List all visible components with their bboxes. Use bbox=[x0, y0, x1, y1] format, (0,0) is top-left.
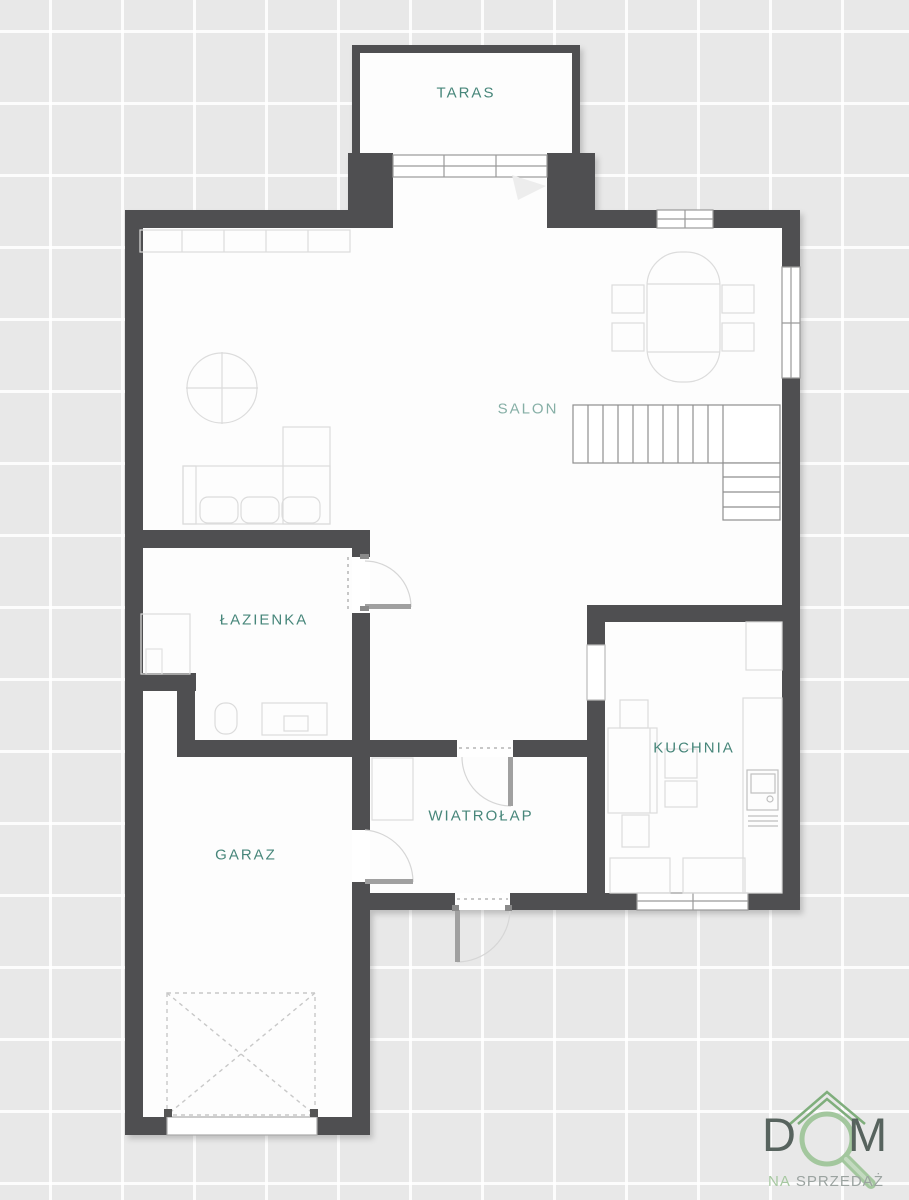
logo-tagline-sprzedaz: SPRZEDAŻ bbox=[796, 1173, 884, 1190]
garage-door-opening-interior bbox=[352, 830, 370, 882]
building-shell bbox=[125, 45, 800, 1135]
room-label-lazienka: ŁAZIENKA bbox=[220, 612, 309, 629]
agency-logo: D M NASPRZEDAŻ bbox=[752, 1083, 909, 1200]
entrance-door-opening bbox=[455, 893, 510, 910]
room-label-taras: TARAS bbox=[437, 85, 496, 102]
room-label-salon: SALON bbox=[498, 401, 559, 418]
room-label-kuchnia: KUCHNIA bbox=[653, 740, 735, 757]
floors-layer bbox=[125, 45, 800, 1135]
kitchen-entry-opening bbox=[587, 645, 605, 700]
garage-gate bbox=[167, 1117, 317, 1135]
floorplan-canvas: TARAS SALON ŁAZIENKA KUCHNIA WIATROŁAP G… bbox=[0, 0, 909, 1200]
salon-top-window bbox=[657, 210, 713, 228]
vestibule-door-opening bbox=[457, 740, 513, 757]
floorplan-drawing bbox=[0, 0, 909, 1200]
logo-tagline-na: NA bbox=[768, 1173, 791, 1190]
room-label-garaz: GARAZ bbox=[215, 847, 277, 864]
terrace-slider-window bbox=[393, 155, 547, 177]
logo-letter-m: M bbox=[848, 1107, 887, 1162]
room-label-wiatrolap: WIATROŁAP bbox=[428, 808, 533, 825]
kitchen-window bbox=[637, 893, 748, 910]
logo-tagline: NASPRZEDAŻ bbox=[768, 1173, 884, 1190]
salon-right-window bbox=[782, 267, 800, 378]
logo-letter-d: D bbox=[762, 1107, 796, 1162]
